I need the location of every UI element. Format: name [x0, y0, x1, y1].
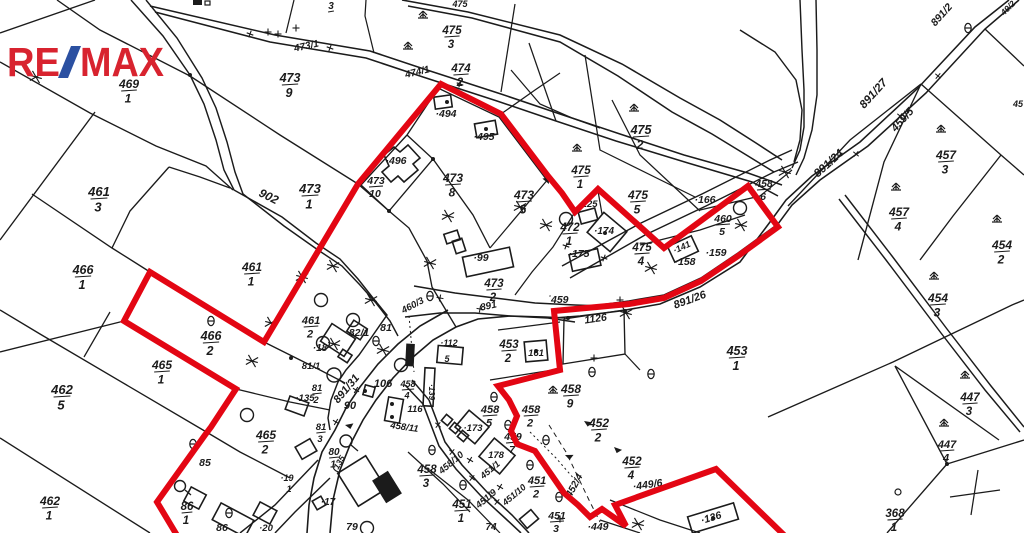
svg-text:·158: ·158 — [674, 256, 695, 268]
svg-text:457: 457 — [888, 205, 910, 219]
svg-text:·449: ·449 — [587, 521, 608, 533]
svg-text:·159: ·159 — [705, 247, 726, 259]
svg-text:5: 5 — [719, 226, 725, 238]
svg-text:3: 3 — [328, 1, 334, 12]
svg-text:5: 5 — [520, 202, 527, 216]
svg-text:74: 74 — [485, 522, 497, 533]
svg-text:·17: ·17 — [321, 497, 336, 508]
svg-text:475: 475 — [631, 242, 652, 254]
svg-text:·112: ·112 — [440, 338, 457, 348]
svg-text:3: 3 — [934, 305, 941, 319]
svg-text:1: 1 — [125, 91, 132, 105]
svg-text:454: 454 — [991, 238, 1012, 252]
svg-text:RE: RE — [7, 39, 60, 85]
svg-text:458: 458 — [521, 404, 541, 416]
svg-text:·18: ·18 — [313, 343, 328, 354]
svg-text:4: 4 — [637, 256, 645, 268]
svg-text:2: 2 — [636, 138, 644, 152]
svg-text:473: 473 — [279, 71, 301, 85]
svg-text:458: 458 — [480, 404, 500, 416]
svg-text:458: 458 — [416, 464, 437, 476]
svg-text:81: 81 — [380, 322, 392, 334]
svg-text:461: 461 — [301, 315, 320, 327]
svg-text:81/1: 81/1 — [302, 361, 321, 372]
svg-text:1: 1 — [458, 513, 464, 525]
svg-text:457: 457 — [935, 148, 957, 162]
svg-text:161: 161 — [528, 348, 544, 359]
svg-text:472: 472 — [559, 222, 580, 234]
svg-text:5: 5 — [57, 397, 65, 412]
svg-text:452: 452 — [588, 416, 609, 430]
svg-text:3: 3 — [423, 478, 430, 490]
svg-text:458: 458 — [560, 382, 581, 396]
svg-text:106: 106 — [374, 378, 393, 390]
svg-text:465: 465 — [151, 358, 172, 372]
svg-text:86: 86 — [216, 522, 228, 533]
svg-text:2: 2 — [504, 353, 512, 365]
svg-text:447: 447 — [959, 392, 980, 404]
svg-text:475: 475 — [630, 123, 653, 137]
svg-text:·19: ·19 — [280, 473, 293, 483]
svg-text:473: 473 — [483, 278, 504, 290]
svg-text:461: 461 — [87, 184, 110, 199]
svg-text:453: 453 — [498, 339, 519, 351]
svg-text:˙459: ˙459 — [547, 294, 568, 306]
svg-text:1: 1 — [79, 278, 86, 292]
svg-text:3: 3 — [942, 162, 949, 176]
svg-text:86: 86 — [181, 501, 194, 513]
svg-text:3: 3 — [553, 523, 559, 533]
svg-text:451: 451 — [527, 475, 546, 487]
svg-text:451: 451 — [547, 510, 566, 522]
svg-text:·495: ·495 — [473, 131, 494, 143]
svg-text:475: 475 — [570, 165, 591, 177]
svg-text:473: 473 — [513, 188, 534, 202]
svg-text:1: 1 — [577, 179, 583, 191]
svg-text:475: 475 — [441, 25, 462, 37]
svg-text:1: 1 — [248, 274, 255, 288]
svg-text:2: 2 — [306, 328, 313, 340]
svg-text:116: 116 — [407, 404, 423, 415]
svg-text:1: 1 — [733, 359, 740, 373]
svg-text:2: 2 — [532, 488, 539, 500]
svg-text:4: 4 — [942, 452, 949, 464]
svg-text:·135: ·135 — [295, 393, 315, 404]
svg-text:45: 45 — [1012, 99, 1024, 109]
svg-text:473: 473 — [366, 175, 385, 187]
svg-text:1: 1 — [158, 372, 165, 386]
svg-text:3: 3 — [94, 199, 102, 214]
svg-text:458: 458 — [754, 178, 773, 190]
svg-text:79: 79 — [346, 521, 358, 533]
svg-text:474: 474 — [450, 63, 471, 75]
svg-text:466: 466 — [200, 329, 223, 343]
svg-text:·166: ·166 — [694, 194, 715, 206]
svg-text:178: 178 — [488, 450, 505, 461]
svg-text:1: 1 — [305, 196, 312, 211]
svg-text:·20: ·20 — [259, 523, 273, 533]
svg-text:447: 447 — [937, 439, 957, 451]
svg-text:462: 462 — [50, 382, 73, 397]
svg-text:2: 2 — [261, 442, 269, 456]
svg-text:85: 85 — [199, 457, 211, 469]
svg-text:·174: ·174 — [594, 226, 614, 237]
svg-text:462: 462 — [39, 494, 60, 508]
svg-text:·494: ·494 — [435, 108, 456, 120]
svg-text:10: 10 — [369, 188, 381, 200]
svg-text:MAX: MAX — [80, 39, 164, 85]
svg-text:458: 458 — [399, 379, 415, 389]
svg-text:3: 3 — [448, 39, 455, 51]
svg-text:2: 2 — [997, 252, 1005, 266]
svg-text:3: 3 — [317, 434, 323, 445]
svg-text:451: 451 — [451, 499, 471, 511]
svg-text:461: 461 — [241, 260, 262, 274]
svg-text:475: 475 — [627, 188, 648, 202]
svg-text:452: 452 — [621, 456, 642, 468]
svg-text:1: 1 — [891, 522, 897, 533]
svg-text:·175: ·175 — [568, 248, 589, 260]
svg-text:454: 454 — [927, 291, 948, 305]
svg-text:3: 3 — [966, 406, 973, 418]
svg-text:1: 1 — [286, 484, 291, 494]
svg-text:82/1: 82/1 — [349, 327, 370, 339]
svg-text:453: 453 — [726, 344, 748, 358]
svg-text:2: 2 — [456, 77, 464, 89]
svg-text:90: 90 — [344, 400, 357, 412]
svg-text:368: 368 — [885, 508, 905, 520]
svg-text:9: 9 — [286, 86, 293, 100]
svg-text:·99: ·99 — [473, 252, 488, 264]
svg-text:473: 473 — [442, 171, 463, 185]
svg-text:1: 1 — [183, 515, 189, 527]
svg-text:2: 2 — [526, 417, 533, 429]
svg-text:2: 2 — [594, 430, 602, 444]
svg-text:2: 2 — [206, 344, 214, 358]
svg-text:8: 8 — [449, 185, 456, 199]
svg-text:1: 1 — [566, 236, 572, 248]
svg-text:·496: ·496 — [385, 155, 406, 167]
svg-text:475: 475 — [451, 0, 468, 9]
svg-text:473: 473 — [298, 181, 321, 196]
svg-text:465: 465 — [255, 428, 276, 442]
svg-text:1: 1 — [46, 508, 53, 522]
svg-text:5: 5 — [634, 202, 641, 216]
svg-text:81: 81 — [316, 422, 327, 433]
svg-text:460: 460 — [713, 213, 732, 225]
svg-text:4: 4 — [894, 219, 902, 233]
svg-text:·173: ·173 — [463, 423, 483, 434]
svg-text:4: 4 — [403, 391, 409, 401]
svg-text:·139: ·139 — [427, 384, 436, 401]
svg-text:466: 466 — [72, 263, 95, 277]
svg-text:9: 9 — [567, 396, 574, 410]
svg-text:5: 5 — [486, 417, 493, 429]
